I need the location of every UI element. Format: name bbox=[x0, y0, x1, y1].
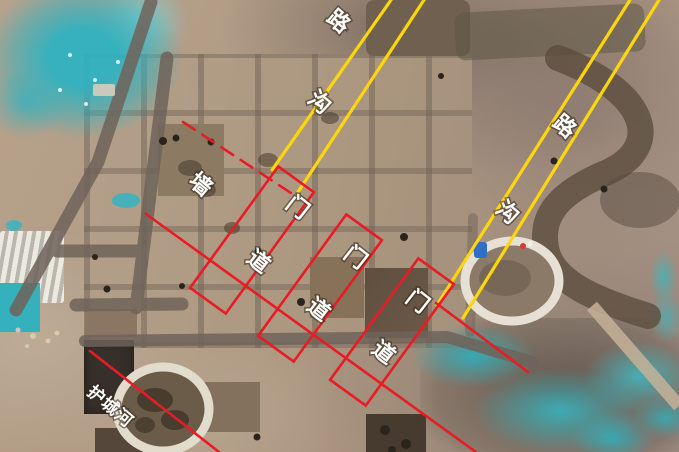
aerial-photo: 路 沟 路 沟 墙 门 道 门 道 门 道 护城河 bbox=[0, 0, 679, 452]
dark-patch-right bbox=[600, 172, 679, 228]
gate-1-path-label: 道 bbox=[242, 245, 275, 279]
trench-vertical bbox=[136, 58, 167, 308]
white-marker-dot bbox=[528, 242, 533, 247]
road-label-left: 路 bbox=[322, 5, 356, 40]
ring-structure-east bbox=[465, 241, 559, 321]
trench-diagonal bbox=[16, 2, 151, 310]
trench-horizontal-left bbox=[76, 304, 182, 305]
trench-bands bbox=[16, 2, 532, 362]
road-label-right: 路 bbox=[548, 110, 582, 145]
gate-3-door-label: 门 bbox=[401, 285, 434, 319]
gate-2-door-label: 门 bbox=[339, 241, 372, 275]
photo-and-annotation-overlay: 路 沟 路 沟 墙 门 道 门 道 门 道 护城河 bbox=[0, 0, 679, 452]
gate-1-door-label: 门 bbox=[281, 191, 314, 225]
gate-2-path-label: 道 bbox=[302, 293, 335, 327]
tarp-highlight-dots bbox=[58, 53, 120, 106]
red-marker-dot bbox=[520, 243, 526, 249]
